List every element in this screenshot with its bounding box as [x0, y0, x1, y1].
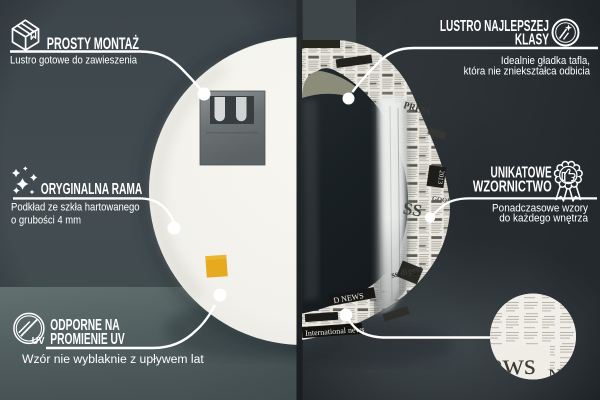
svg-text:UV: UV	[32, 336, 45, 347]
svg-text:PROSTY MONTAŻ: PROSTY MONTAŻ	[47, 33, 140, 52]
svg-text:do każdego wnętrza: do każdego wnętrza	[499, 213, 588, 224]
svg-text:PROMIENIE UV: PROMIENIE UV	[50, 330, 125, 348]
svg-text:SS: SS	[402, 199, 424, 221]
svg-text:KLASY: KLASY	[515, 30, 549, 48]
svg-text:WZORNICTWO: WZORNICTWO	[473, 178, 552, 195]
svg-text:o grubości 4 mm: o grubości 4 mm	[11, 215, 81, 227]
svg-text:Lustro gotowe do zawieszenia: Lustro gotowe do zawieszenia	[10, 55, 137, 67]
svg-text:ORYGINALNA RAMA: ORYGINALNA RAMA	[41, 180, 143, 198]
svg-text:Podkład ze szkła hartowanego: Podkład ze szkła hartowanego	[11, 202, 140, 214]
svg-text:która nie zniekształca odbicia: która nie zniekształca odbicia	[464, 66, 591, 78]
svg-text:Wzór nie wyblaknie z upływem l: Wzór nie wyblaknie z upływem lat	[22, 352, 204, 366]
